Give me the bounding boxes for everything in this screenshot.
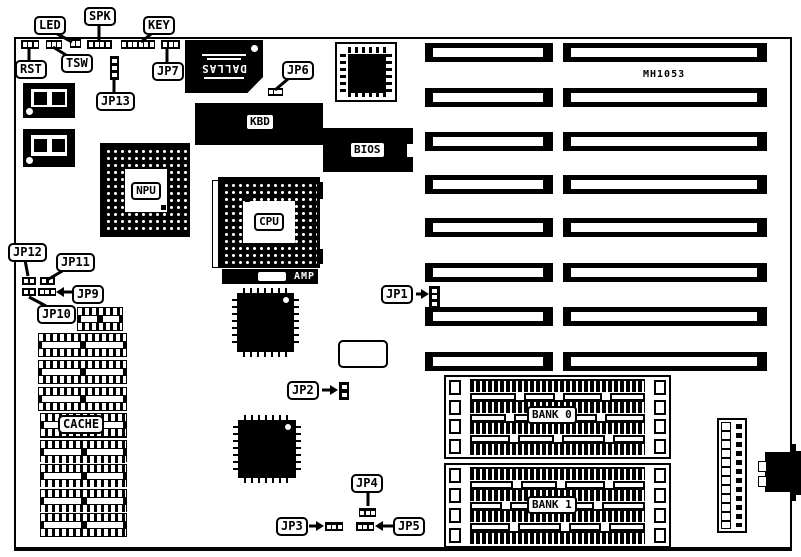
callout-jp10: JP10 xyxy=(37,305,76,324)
callout-jp1: JP1 xyxy=(381,285,413,304)
callout-jp11: JP11 xyxy=(56,253,95,272)
motherboard-diagram: DALLAS KBD BIOS NPU CPU A xyxy=(0,0,801,557)
callout-jp3: JP3 xyxy=(276,517,308,536)
callout-led: LED xyxy=(34,16,66,35)
bios-label: BIOS xyxy=(349,141,386,159)
callout-jp4: JP4 xyxy=(351,474,383,493)
callout-jp2: JP2 xyxy=(287,381,319,400)
cache-label: CACHE xyxy=(58,415,104,434)
callout-jp9: JP9 xyxy=(72,285,104,304)
kbd-label: KBD xyxy=(245,113,275,131)
bank1-label: BANK 1 xyxy=(527,496,577,514)
callout-key: KEY xyxy=(143,16,175,35)
callout-jp12: JP12 xyxy=(8,243,47,262)
callout-rst: RST xyxy=(15,60,47,79)
callout-spk: SPK xyxy=(84,7,116,26)
callout-jp6: JP6 xyxy=(282,61,314,80)
callout-jp7: JP7 xyxy=(152,62,184,81)
callout-tsw: TSW xyxy=(61,54,93,73)
callout-jp13: JP13 xyxy=(96,92,135,111)
callout-jp5: JP5 xyxy=(393,517,425,536)
bank0-label: BANK 0 xyxy=(527,406,577,424)
callout-leader-lines xyxy=(0,0,801,557)
